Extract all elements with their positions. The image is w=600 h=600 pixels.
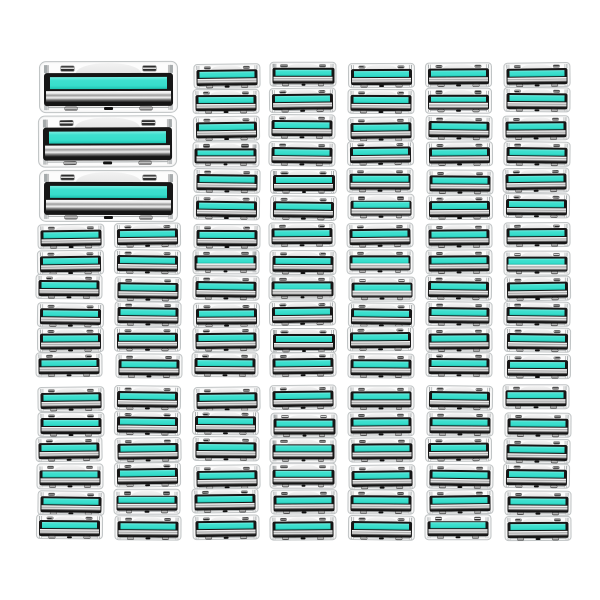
release-clip-right-icon: [321, 416, 327, 418]
blade-housing: [273, 391, 335, 407]
razor-cartridge: [425, 249, 492, 275]
base-clip-left-icon: [439, 191, 445, 193]
frame-pin-bottom-right: [487, 536, 488, 538]
base-clip-left-icon: [283, 350, 289, 352]
razor-cartridge: [425, 88, 492, 113]
lubricant-strip: [197, 418, 253, 424]
release-clip-right-icon: [320, 388, 326, 390]
blade-housing: [38, 443, 100, 459]
blade-stack: [351, 156, 410, 162]
base-clip-left-icon: [282, 163, 288, 165]
release-clip-right-icon: [397, 356, 403, 358]
release-clip-right-icon: [396, 171, 402, 173]
razor-cartridge: [503, 221, 570, 247]
blade-stack: [430, 504, 489, 510]
frame-pin-bottom-right: [489, 433, 490, 435]
blade-housing: [40, 418, 101, 433]
base-clip-left-icon: [361, 433, 367, 435]
blade-housing: [195, 201, 257, 217]
release-clip-left-icon: [61, 175, 74, 180]
base-connector: [300, 297, 305, 299]
release-clip-left-icon: [358, 171, 364, 173]
base-clip-right-icon: [84, 374, 90, 376]
base-clip-right-icon: [473, 536, 479, 538]
base-connector: [300, 136, 305, 138]
release-clip-left-icon: [48, 253, 54, 255]
lubricant-strip: [354, 310, 410, 317]
frame-pin-bottom-right: [170, 215, 172, 220]
release-clip-right-icon: [241, 491, 247, 493]
blade-housing: [117, 444, 179, 460]
lubricant-strip: [431, 96, 487, 102]
blade-housing: [40, 333, 101, 349]
release-clip-right-icon: [243, 172, 249, 174]
base-clip-right-icon: [396, 348, 402, 350]
base-connector: [378, 190, 383, 192]
lubricant-strip: [353, 124, 409, 131]
base-connector: [145, 271, 150, 273]
blade-stack: [429, 289, 488, 295]
blade-housing: [506, 307, 568, 323]
blade-stack: [273, 290, 332, 295]
release-clip-right-icon: [164, 389, 170, 391]
blade-housing: [507, 497, 568, 513]
release-clip-right-icon: [164, 279, 170, 281]
razor-cartridge: [269, 221, 336, 247]
blade-stack: [430, 426, 489, 432]
base-clip-right-icon: [551, 189, 557, 191]
frame-pin-right: [333, 252, 334, 256]
base-clip-left-icon: [283, 485, 289, 487]
base-clip-left-icon: [516, 485, 522, 487]
lubricant-strip: [42, 522, 98, 528]
blade-stack: [507, 208, 566, 214]
comfort-dome: [521, 223, 552, 228]
razor-cartridge: [192, 249, 259, 274]
release-clip-left-icon: [514, 196, 520, 198]
release-clip-left-icon: [125, 304, 131, 306]
blade-stack: [274, 478, 333, 483]
base-connector: [223, 458, 228, 460]
razor-cartridge: [192, 116, 259, 142]
base-connector: [69, 245, 74, 247]
base-connector: [456, 536, 461, 538]
release-clip-right-icon: [142, 120, 155, 125]
razor-cartridge: [502, 167, 569, 193]
release-clip-left-icon: [358, 225, 364, 227]
base-clip-right-icon: [473, 297, 479, 299]
blade-housing: [272, 94, 334, 110]
blade-housing: [427, 521, 488, 536]
release-clip-left-icon: [203, 278, 209, 280]
base-clip-right-icon: [317, 136, 323, 138]
base-clip-left-icon: [438, 297, 444, 299]
release-clip-right-icon: [553, 467, 559, 469]
release-clip-left-icon: [437, 493, 443, 495]
razor-cartridge: [270, 62, 337, 87]
release-clip-left-icon: [514, 466, 520, 468]
razor-cartridge: [425, 301, 492, 327]
base-clip-left-icon: [282, 243, 288, 245]
release-clip-right-icon: [242, 329, 248, 331]
frame-pin-bottom-left: [195, 537, 196, 539]
blade-stack: [507, 478, 566, 484]
razor-cartridge: [347, 141, 414, 167]
blade-stack: [352, 104, 411, 110]
release-clip-left-icon: [203, 252, 209, 254]
base-connector: [223, 348, 228, 350]
blade-stack: [273, 129, 332, 135]
release-clip-right-icon: [553, 442, 559, 444]
blade-stack: [352, 426, 411, 432]
blade-housing: [274, 496, 335, 512]
release-clip-right-icon: [164, 252, 170, 254]
frame-pin-bottom-right: [332, 136, 333, 138]
razor-cartridge: [270, 463, 337, 488]
razor-cartridge: [35, 274, 102, 300]
razor-cartridge: [37, 223, 104, 249]
release-clip-right-icon: [397, 388, 403, 390]
frame-pin-left: [117, 225, 118, 229]
base-connector: [103, 161, 113, 165]
blade-housing: [194, 416, 255, 432]
base-clip-left-icon: [49, 536, 55, 538]
release-clip-left-icon: [280, 278, 286, 280]
base-clip-left-icon: [206, 324, 212, 326]
base-clip-left-icon: [516, 323, 522, 325]
base-clip-right-icon: [162, 407, 168, 409]
base-clip-right-icon: [474, 323, 480, 325]
razor-cartridge: [270, 249, 337, 275]
blade-stack: [352, 131, 411, 137]
lubricant-strip: [432, 393, 488, 400]
lubricant-strip: [121, 361, 177, 367]
base-clip-right-icon: [162, 244, 168, 246]
release-clip-right-icon: [242, 199, 248, 201]
base-clip-right-icon: [474, 137, 480, 139]
frame-pin-right: [177, 224, 178, 228]
blade-housing: [40, 393, 102, 409]
razor-cartridge: [504, 516, 571, 542]
base-connector: [222, 510, 227, 512]
base-clip-right-icon: [163, 459, 169, 461]
base-clip-right-icon: [474, 374, 480, 376]
blade-housing: [117, 417, 179, 433]
blade-housing: [273, 175, 334, 190]
base-clip-left-icon: [516, 84, 522, 86]
lubricant-strip: [119, 419, 175, 426]
release-clip-left-icon: [280, 225, 286, 227]
razor-cartridge: [347, 222, 414, 248]
razor-cartridge: [347, 326, 414, 352]
base-clip-left-icon: [127, 270, 133, 272]
base-clip-right-icon: [474, 244, 480, 246]
blade-housing: [350, 332, 411, 348]
base-clip-right-icon: [397, 538, 403, 540]
base-connector: [224, 190, 229, 192]
frame-pin-bottom-left: [507, 538, 508, 540]
base-clip-left-icon: [48, 295, 54, 297]
razor-cartridge: [503, 87, 570, 113]
blade-stack: [352, 504, 411, 510]
blade-stack: [41, 401, 100, 407]
release-clip-right-icon: [553, 278, 559, 280]
lubricant-strip: [119, 497, 175, 503]
lubricant-strip: [120, 284, 176, 291]
razor-cartridge: [270, 516, 337, 542]
blade-housing: [196, 230, 257, 246]
blade-stack: [118, 291, 177, 297]
blade-housing: [117, 282, 179, 298]
base-clip-left-icon: [439, 407, 445, 409]
blade-stack: [430, 210, 489, 216]
base-clip-right-icon: [86, 349, 92, 351]
blade-stack: [353, 479, 412, 485]
base-connector: [145, 323, 150, 325]
razor-cartridge: [424, 515, 491, 540]
release-clip-left-icon: [359, 356, 365, 358]
base-clip-left-icon: [50, 349, 56, 351]
blade-stack: [429, 451, 488, 457]
razor-cartridge: [271, 413, 338, 438]
razor-cartridge: [37, 302, 104, 328]
blade-stack: [41, 317, 100, 323]
blade-housing: [39, 521, 100, 537]
frame-pin-bottom-left: [117, 537, 118, 539]
base-clip-left-icon: [205, 348, 211, 350]
lubricant-strip: [509, 230, 565, 236]
razor-cartridge: [193, 302, 260, 328]
blade-housing: [40, 256, 102, 272]
razor-cartridge: [114, 327, 181, 352]
frame-pin-bottom-right: [412, 459, 413, 461]
release-clip-left-icon: [47, 277, 53, 279]
razor-cartridge: [193, 464, 260, 490]
release-clip-right-icon: [398, 66, 404, 68]
base-connector: [535, 272, 540, 274]
release-clip-left-icon: [125, 466, 131, 468]
base-clip-left-icon: [360, 189, 366, 191]
blade-housing: [117, 255, 179, 271]
base-clip-right-icon: [317, 164, 323, 166]
base-clip-right-icon: [552, 243, 558, 245]
base-connector: [379, 163, 384, 165]
razor-cartridge: [36, 514, 103, 540]
lubricant-strip: [431, 70, 487, 76]
base-clip-right-icon: [396, 163, 402, 165]
frame-pin-right: [170, 65, 172, 73]
base-connector: [300, 243, 305, 245]
frame-pin-left: [429, 252, 430, 256]
razor-cartridge: [348, 302, 415, 328]
base-clip-right-icon: [162, 433, 168, 435]
lubricant-strip: [431, 231, 487, 237]
razor-cartridge: [192, 142, 259, 167]
blade-housing: [273, 256, 334, 272]
lubricant-strip: [353, 498, 409, 504]
razor-cartridge: [348, 194, 415, 219]
frame-pin-bottom-left: [506, 485, 507, 487]
release-clip-left-icon: [48, 467, 54, 469]
razor-cartridge: [504, 354, 571, 380]
release-clip-right-icon: [475, 440, 481, 442]
release-clip-right-icon: [163, 225, 169, 227]
release-clip-right-icon: [554, 494, 560, 496]
blade-stack: [508, 342, 567, 348]
razor-cartridge: [348, 89, 415, 115]
razor-cartridge: [504, 275, 571, 301]
blade-housing: [117, 391, 179, 407]
release-clip-right-icon: [164, 519, 170, 521]
frame-pin-bottom-left: [507, 512, 508, 514]
blade-stack: [275, 504, 334, 510]
blade-stack: [352, 530, 411, 536]
blade-stack: [119, 368, 178, 374]
release-clip-right-icon: [319, 145, 325, 147]
release-clip-right-icon: [320, 355, 326, 357]
release-clip-left-icon: [359, 415, 365, 417]
frame-pin-right: [169, 119, 171, 127]
blade-housing: [506, 445, 568, 461]
lubricant-strip: [199, 71, 255, 78]
release-clip-left-icon: [359, 120, 365, 122]
release-clip-right-icon: [554, 357, 560, 359]
blade-stack: [352, 78, 411, 84]
base-connector: [222, 374, 227, 376]
release-clip-left-icon: [437, 199, 443, 201]
razor-cartridge: [270, 169, 337, 194]
lubricant-strip: [198, 444, 254, 450]
lubricant-strip: [353, 334, 409, 340]
blade-stack: [508, 505, 567, 511]
release-clip-right-icon: [242, 119, 248, 121]
blade-housing: [507, 419, 568, 435]
razor-cartridge: [114, 516, 181, 542]
release-clip-left-icon: [515, 519, 521, 521]
lubricant-strip: [198, 257, 254, 263]
base-connector: [301, 485, 306, 487]
base-clip-left-icon: [128, 375, 134, 377]
razor-cartridge: [504, 491, 571, 517]
lubricant-strip: [198, 124, 254, 131]
blade-stack: [41, 238, 100, 244]
large-cartridge-stack: [39, 61, 178, 222]
release-clip-left-icon: [514, 304, 520, 306]
base-clip-right-icon: [163, 538, 169, 540]
base-clip-right-icon: [317, 297, 323, 299]
frame-pin-bottom-right: [333, 537, 334, 539]
release-clip-left-icon: [282, 199, 288, 201]
release-clip-left-icon: [437, 145, 443, 147]
blade-stack: [195, 503, 254, 509]
razor-cartridge: [38, 412, 105, 437]
base-connector: [458, 486, 463, 488]
blade-stack: [273, 103, 332, 109]
blade-stack: [507, 265, 566, 270]
blade-stack: [352, 209, 411, 214]
razor-cartridge: [193, 386, 260, 412]
base-clip-right-icon: [474, 84, 480, 86]
release-clip-left-icon: [513, 171, 519, 173]
release-clip-right-icon: [86, 518, 92, 520]
lubricant-strip: [508, 123, 564, 129]
base-clip-left-icon: [517, 298, 523, 300]
lubricant-strip: [509, 283, 565, 290]
base-clip-left-icon: [283, 459, 289, 461]
blade-housing: [194, 495, 256, 511]
release-clip-right-icon: [242, 92, 248, 94]
base-clip-left-icon: [439, 433, 445, 435]
blade-stack: [351, 341, 410, 347]
razor-cartridge: [426, 385, 493, 411]
frame-pin-right: [177, 252, 178, 256]
blade-housing: [506, 200, 567, 216]
base-connector: [224, 245, 229, 247]
blade-stack: [118, 425, 177, 431]
frame-pin-bottom-right: [98, 458, 99, 460]
frame-pin-bottom-right: [411, 538, 412, 540]
release-clip-left-icon: [60, 120, 73, 125]
blade-stack: [274, 452, 333, 457]
release-clip-left-icon: [49, 415, 55, 417]
base-clip-left-icon: [438, 84, 444, 86]
base-clip-right-icon: [396, 375, 402, 377]
base-clip-right-icon: [475, 511, 481, 513]
base-clip-left-icon: [205, 432, 211, 434]
base-connector: [223, 537, 228, 539]
blade-housing: [273, 334, 334, 349]
release-clip-left-icon: [514, 145, 520, 147]
razor-cartridge: [502, 115, 569, 141]
razor-cartridge: [425, 437, 492, 463]
lubricant-strip: [508, 202, 564, 208]
razor-cartridge: [426, 195, 493, 221]
base-connector: [534, 190, 539, 192]
base-clip-left-icon: [361, 375, 367, 377]
blade-stack: [196, 264, 255, 269]
release-clip-left-icon: [281, 331, 287, 333]
blade-stack: [429, 315, 488, 321]
razor-cartridge: [425, 115, 492, 141]
base-clip-right-icon: [319, 511, 325, 513]
base-connector: [379, 111, 384, 113]
blade-stack: [429, 103, 488, 108]
frame-pin-bottom-right: [334, 511, 335, 513]
razor-cartridge: [39, 170, 178, 222]
lubricant-strip: [276, 498, 332, 504]
release-clip-left-icon: [281, 65, 287, 67]
blade-stack: [507, 315, 566, 321]
base-clip-right-icon: [473, 110, 479, 112]
lubricant-strip: [275, 360, 331, 367]
blade-stack: [430, 400, 489, 406]
base-clip-left-icon: [50, 324, 56, 326]
blade-housing: [117, 333, 178, 348]
razor-cartridge: [503, 62, 570, 88]
release-clip-right-icon: [87, 252, 93, 254]
blade-stack: [40, 529, 99, 535]
lubricant-strip: [431, 283, 487, 290]
release-clip-right-icon: [397, 493, 403, 495]
blade-stack: [508, 368, 567, 374]
release-clip-right-icon: [397, 329, 403, 331]
frame-pin-bottom-right: [177, 483, 178, 485]
release-clip-left-icon: [436, 252, 442, 254]
base-clip-right-icon: [86, 434, 92, 436]
lubricant-strip: [354, 284, 410, 290]
base-clip-right-icon: [552, 349, 558, 351]
blade-stack: [507, 156, 566, 162]
